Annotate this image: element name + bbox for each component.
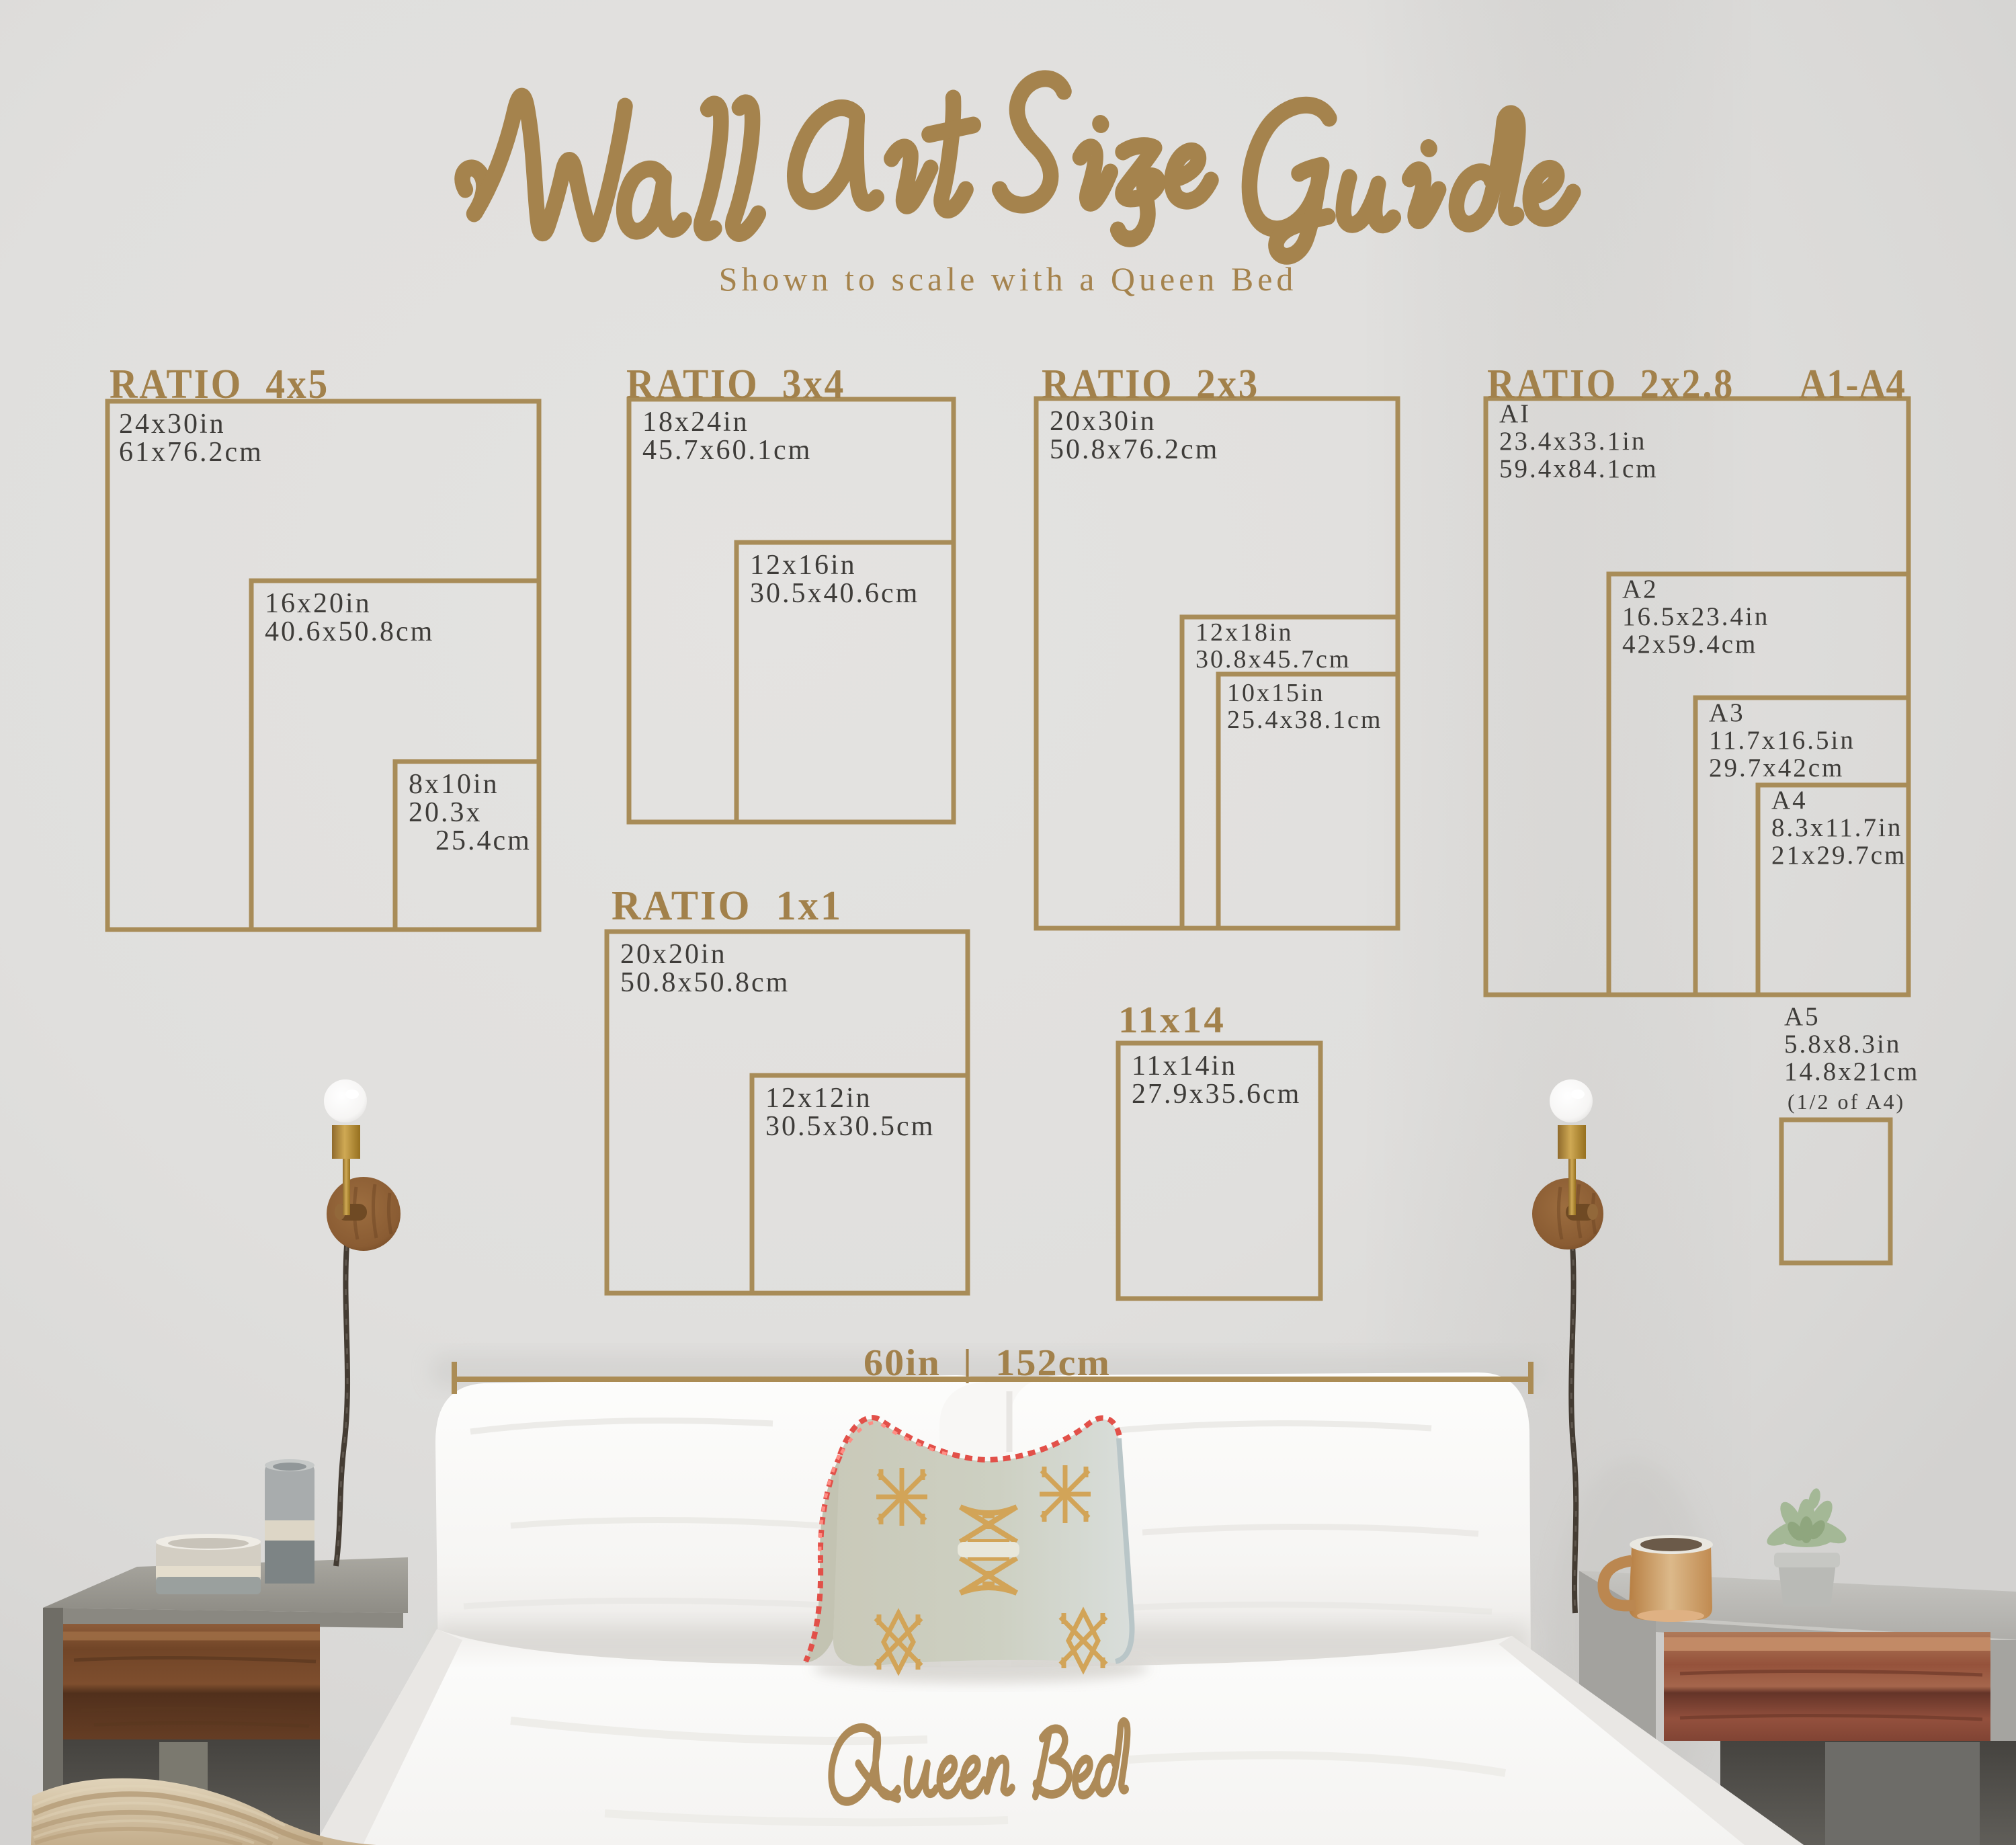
svg-text:AI: AI [1499,399,1531,428]
svg-text:25.4cm: 25.4cm [435,825,532,856]
svg-text:A1-A4: A1-A4 [1799,362,1905,407]
svg-text:8x10in: 8x10in [409,769,499,800]
svg-text:A2: A2 [1622,575,1658,604]
svg-text:30.8x45.7cm: 30.8x45.7cm [1195,645,1351,673]
svg-text:40.6x50.8cm: 40.6x50.8cm [265,616,434,647]
svg-text:12x12in: 12x12in [765,1083,872,1114]
svg-text:11x14: 11x14 [1118,999,1226,1041]
svg-text:30.5x30.5cm: 30.5x30.5cm [765,1111,935,1142]
svg-text:27.9x35.6cm: 27.9x35.6cm [1132,1079,1301,1110]
svg-text:30.5x40.6cm: 30.5x40.6cm [750,578,919,609]
svg-text:20.3x: 20.3x [409,797,482,828]
svg-text:14.8x21cm: 14.8x21cm [1784,1057,1919,1086]
svg-text:10x15in: 10x15in [1227,679,1325,707]
svg-text:RATIO 1x1: RATIO 1x1 [612,883,843,929]
svg-text:25.4x38.1cm: 25.4x38.1cm [1227,706,1382,734]
svg-text:A5: A5 [1784,1002,1820,1031]
svg-text:50.8x50.8cm: 50.8x50.8cm [620,967,790,998]
svg-text:11x14in: 11x14in [1132,1051,1237,1081]
svg-text:50.8x76.2cm: 50.8x76.2cm [1050,434,1219,465]
svg-text:A3: A3 [1709,698,1745,727]
svg-text:12x18in: 12x18in [1195,618,1294,647]
svg-text:20x20in: 20x20in [620,939,727,970]
svg-text:45.7x60.1cm: 45.7x60.1cm [642,435,812,466]
svg-text:8.3x11.7in: 8.3x11.7in [1771,813,1902,842]
svg-text:12x16in: 12x16in [750,550,857,581]
svg-text:61x76.2cm: 61x76.2cm [119,437,263,468]
svg-text:RATIO 2x3: RATIO 2x3 [1042,362,1259,407]
svg-text:16x20in: 16x20in [265,588,372,619]
svg-text:59.4x84.1cm: 59.4x84.1cm [1499,454,1658,483]
svg-text:20x30in: 20x30in [1050,406,1157,437]
svg-text:24x30in: 24x30in [119,409,226,440]
svg-text:18x24in: 18x24in [642,407,749,438]
svg-text:21x29.7cm: 21x29.7cm [1771,841,1906,870]
svg-text:Shown to scale with a Queen Be: Shown to scale with a Queen Bed [719,260,1298,298]
svg-text:16.5x23.4in: 16.5x23.4in [1622,602,1769,631]
svg-text:A4: A4 [1771,786,1808,815]
svg-text:29.7x42cm: 29.7x42cm [1709,753,1844,782]
svg-text:11.7x16.5in: 11.7x16.5in [1709,726,1855,755]
svg-text:(1/2 of A4): (1/2 of A4) [1788,1090,1905,1114]
svg-text:5.8x8.3in: 5.8x8.3in [1784,1030,1901,1059]
svg-text:42x59.4cm: 42x59.4cm [1622,630,1757,659]
svg-text:23.4x33.1in: 23.4x33.1in [1499,427,1646,456]
svg-text:RATIO 3x4: RATIO 3x4 [626,362,845,407]
svg-text:RATIO 4x5: RATIO 4x5 [110,362,329,407]
